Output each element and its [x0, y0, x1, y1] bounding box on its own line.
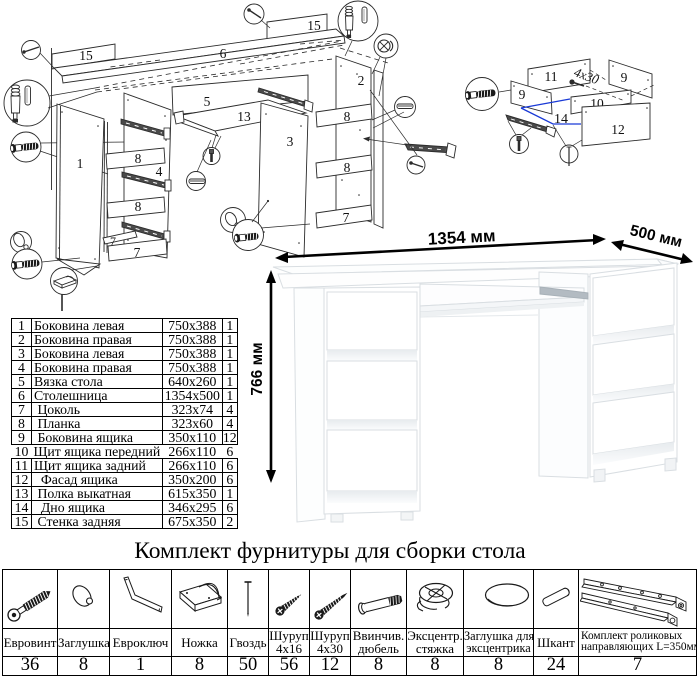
svg-text:8: 8	[135, 151, 142, 166]
svg-text:4: 4	[156, 164, 163, 179]
svg-text:7: 7	[134, 245, 141, 260]
svg-text:1: 1	[77, 156, 84, 171]
svg-text:500 мм: 500 мм	[628, 222, 684, 251]
svg-text:2: 2	[358, 73, 365, 88]
svg-text:3: 3	[287, 134, 294, 149]
svg-text:11: 11	[545, 69, 558, 84]
svg-text:12: 12	[611, 122, 625, 137]
svg-text:8: 8	[135, 199, 142, 214]
svg-text:1354 мм: 1354 мм	[427, 226, 496, 249]
svg-text:8: 8	[344, 109, 351, 124]
svg-text:14: 14	[554, 112, 568, 127]
svg-text:6: 6	[220, 46, 227, 61]
svg-text:766 мм: 766 мм	[249, 342, 266, 395]
svg-text:15: 15	[79, 48, 93, 63]
svg-text:7: 7	[343, 210, 350, 225]
svg-text:9: 9	[621, 70, 628, 85]
svg-text:15: 15	[307, 18, 321, 33]
svg-text:9: 9	[519, 87, 526, 102]
svg-text:13: 13	[237, 109, 251, 124]
svg-text:8: 8	[344, 160, 351, 175]
svg-text:5: 5	[204, 94, 211, 109]
